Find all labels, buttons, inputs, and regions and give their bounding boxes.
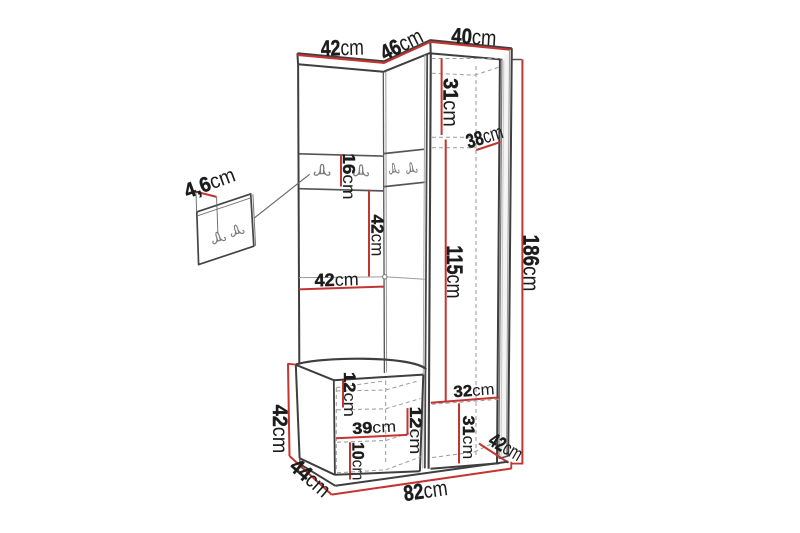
svg-text:115cm: 115cm	[442, 245, 466, 298]
svg-text:82cm: 82cm	[402, 477, 449, 507]
svg-text:12cm: 12cm	[406, 407, 425, 455]
svg-text:31cm: 31cm	[438, 78, 462, 127]
svg-text:32cm: 32cm	[453, 381, 495, 401]
svg-text:42cm: 42cm	[367, 215, 388, 257]
svg-text:31cm: 31cm	[459, 416, 479, 460]
svg-text:16cm: 16cm	[339, 153, 359, 199]
svg-text:42cm: 42cm	[321, 36, 365, 61]
svg-text:186cm: 186cm	[518, 235, 543, 292]
svg-text:42cm: 42cm	[485, 428, 527, 465]
svg-text:42cm: 42cm	[314, 269, 359, 290]
svg-text:12cm: 12cm	[340, 372, 359, 417]
svg-text:39cm: 39cm	[352, 418, 397, 438]
svg-text:46cm: 46cm	[377, 24, 428, 65]
svg-text:4,6cm: 4,6cm	[181, 164, 238, 203]
svg-text:44cm: 44cm	[285, 455, 335, 503]
svg-text:42cm: 42cm	[268, 405, 292, 454]
svg-text:40cm: 40cm	[451, 25, 498, 52]
